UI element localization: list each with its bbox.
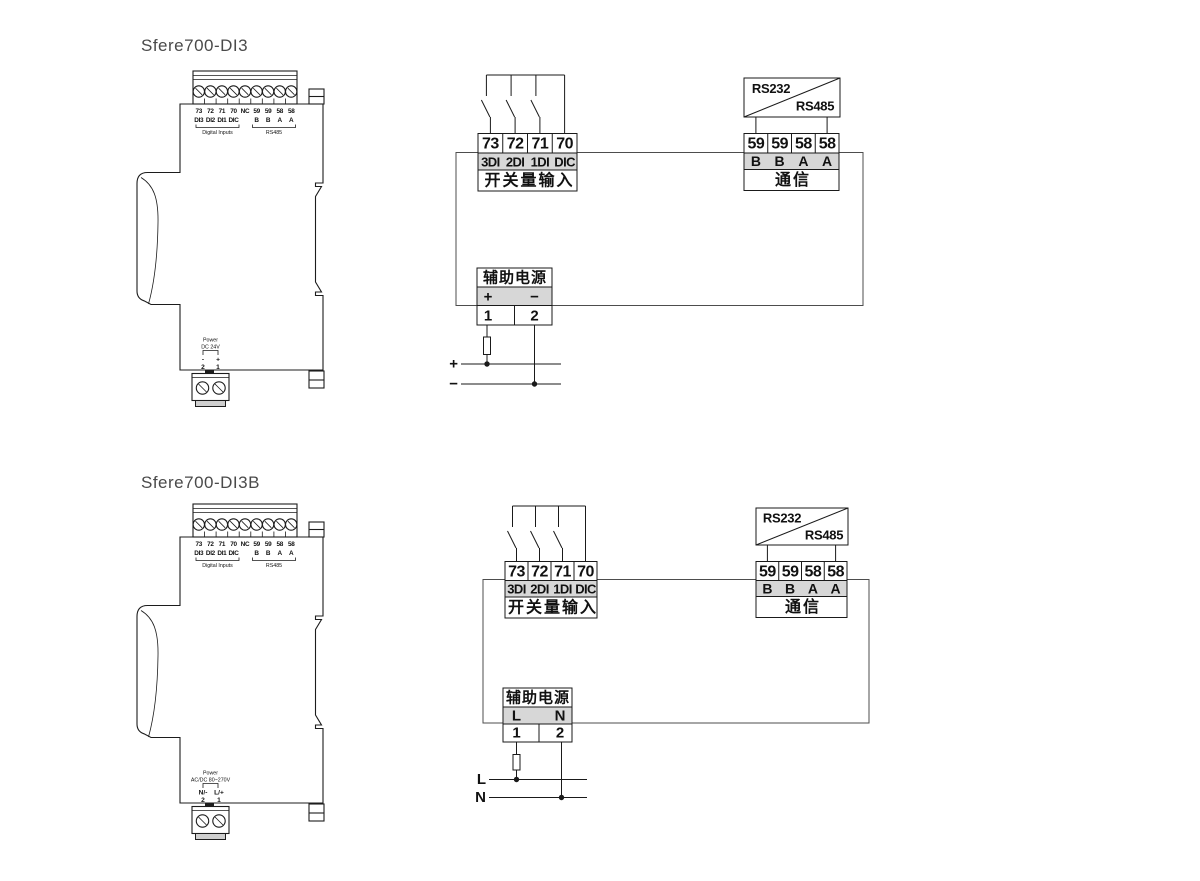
comm-label: A [831,581,841,597]
device-signal-labels: DI3DI2DI1DICBBAA [194,117,294,124]
power-supply-wiring: L N [475,742,587,806]
rs232-label: RS232 [752,81,790,96]
aux-terminal: 2 [556,725,564,742]
rs485-label: RS485 [805,528,843,543]
terminal-number: 59 [265,541,272,548]
terminal-number: 58 [288,108,295,115]
digital-input-block: 73727170 3DI2DI1DIDIC 开关量输入 [505,562,598,619]
comm-terminal: 59 [782,564,799,581]
aux-polarity: L [512,708,521,725]
digital-inputs-group-label: Digital Inputs [202,130,233,136]
comm-label: B [785,581,795,597]
input-label: DIC [554,155,576,170]
power-rating: DC 24V [201,345,220,351]
power-terminal: 2 [201,364,205,371]
aux-terminal: 2 [530,308,538,325]
comm-terminal: 58 [795,136,812,153]
signal-label: A [289,117,294,124]
input-label: 2DI [530,582,548,597]
input-label: 3DI [481,155,499,170]
aux-caption: 辅助电源 [483,269,547,287]
terminal-number: 70 [230,108,237,115]
wiring-diagram-svg: Sfere700-DI3 73727170NC59595858 DI3DI2DI… [0,0,1200,881]
terminal-number: 71 [219,108,226,115]
page-title: Sfere700-DI3B [141,473,260,492]
signal-label: DI3 [194,117,204,124]
page-canvas: Sfere700-DI3 73727170NC59595858 DI3DI2DI… [0,0,1200,881]
rs485-label: RS485 [796,99,834,114]
power-terminal: 1 [217,797,221,804]
power-title: Power [203,771,218,777]
fuse [484,337,491,355]
polarity-label: L/+ [214,790,224,797]
signal-label: B [254,117,259,124]
signal-label: A [278,550,283,557]
rs485-group-label: RS485 [266,563,282,569]
wiring-diagram-di3b: 73727170 3DI2DI1DIDIC 开关量输入 RS232 RS485 … [475,506,869,806]
input-terminal: 72 [507,136,524,153]
comm-label: A [798,153,808,169]
signal-label: DI1 [217,117,227,124]
device-labels-di3: 73727170NC59595858 DI3DI2DI1DICBBAA Digi… [194,108,295,371]
input-terminal: 70 [577,564,594,581]
input-label: 3DI [507,582,525,597]
terminal-number: 70 [230,541,237,548]
device-signal-labels: DI3DI2DI1DICBBAA [194,550,294,557]
signal-label: B [266,550,271,557]
aux-power-block: 辅助电源 +− 12 [477,268,552,325]
terminal-group-brackets [196,125,296,128]
terminal-number: 58 [288,541,295,548]
terminal-number: 72 [207,541,214,548]
signal-label: DIC [228,117,239,124]
comm-terminal: 58 [827,564,844,581]
input-caption: 开关量输入 [484,171,574,190]
comm-caption: 通信 [785,597,821,616]
switch-symbols [508,506,586,562]
supply-label-live: L [477,771,486,788]
section-di3b: Sfere700-DI3B 73727170NC59595858 DI3DI2D… [137,473,869,840]
input-caption: 开关量输入 [508,598,598,617]
input-label: 1DI [531,155,549,170]
digital-input-block: 73727170 3DI2DI1DIDIC 开关量输入 [478,134,577,192]
signal-label: B [266,117,271,124]
comm-label: B [775,153,785,169]
power-terminal: 2 [201,797,205,804]
aux-terminal: 1 [484,308,492,325]
device-terminal-numbers: 73727170NC59595858 [196,108,296,115]
power-rating: AC/DC 80~270V [191,778,231,784]
input-terminal: 73 [508,564,525,581]
input-terminal: 71 [532,136,549,153]
terminal-number: 71 [219,541,226,548]
terminal-number: 58 [276,108,283,115]
comm-label: B [751,153,761,169]
comm-caption: 通信 [775,170,811,189]
polarity-label: - [202,357,204,364]
terminal-number: NC [241,108,250,115]
signal-label: A [289,550,294,557]
terminal-group-brackets [196,558,296,561]
aux-power-block: 辅助电源 LN 12 [503,688,572,742]
power-polarity: -+ [202,357,220,364]
signal-label: DIC [228,550,239,557]
page-title: Sfere700-DI3 [141,36,248,55]
junction-dot [559,795,564,800]
aux-polarity: N [555,708,566,725]
aux-terminal: 1 [512,725,520,742]
input-label: DIC [575,582,597,597]
junction-dot [514,777,519,782]
wiring-diagram-di3: 73727170 3DI2DI1DIDIC 开关量输入 RS232 RS485 … [449,75,863,393]
terminal-number: 59 [253,108,260,115]
rs485-group-label: RS485 [266,130,282,136]
comm-label: A [808,581,818,597]
digital-inputs-group-label: Digital Inputs [202,563,233,569]
polarity-label: N/- [199,790,208,797]
supply-label-positive: + [449,356,458,373]
input-terminal: 73 [482,136,499,153]
signal-label: DI3 [194,550,204,557]
comm-terminal: 58 [819,136,836,153]
supply-label-negative: − [449,376,458,393]
rs232-label: RS232 [763,511,801,526]
polarity-label: + [216,357,220,364]
aux-polarity: + [484,289,493,306]
power-terminal: 1 [216,364,220,371]
input-terminal: 70 [556,136,573,153]
terminal-number: NC [241,541,250,548]
terminal-number: 59 [253,541,260,548]
signal-label: B [254,550,259,557]
terminal-number: 72 [207,108,214,115]
device-labels-di3b: 73727170NC59595858 DI3DI2DI1DICBBAA Digi… [191,541,296,804]
signal-label: A [278,117,283,124]
input-label: 1DI [553,582,571,597]
communication-block: RS232 RS485 59595858 BBAA 通信 [756,508,848,618]
comm-terminal: 58 [805,564,822,581]
power-title: Power [203,338,218,344]
section-di3: Sfere700-DI3 73727170NC59595858 DI3DI2DI… [137,36,863,407]
aux-polarity: − [530,289,539,306]
terminal-number: 58 [276,541,283,548]
device-terminal-numbers: 73727170NC59595858 [196,541,296,548]
communication-block: RS232 RS485 59595858 BBAA 通信 [744,78,840,191]
signal-label: DI2 [206,550,216,557]
power-polarity: N/-L/+ [199,790,224,797]
aux-caption: 辅助电源 [506,689,570,707]
terminal-number: 73 [196,108,203,115]
supply-label-neutral: N [475,789,486,806]
comm-terminal: 59 [748,136,765,153]
comm-terminal: 59 [759,564,776,581]
junction-dot [532,381,537,386]
comm-terminal: 59 [771,136,788,153]
terminal-number: 73 [196,541,203,548]
switch-symbols [481,75,564,134]
input-terminal: 72 [531,564,548,581]
terminal-number: 59 [265,108,272,115]
signal-label: DI2 [206,117,216,124]
signal-label: DI1 [217,550,227,557]
input-label: 2DI [506,155,524,170]
junction-dot [484,361,489,366]
input-terminal: 71 [554,564,571,581]
comm-label: A [822,153,832,169]
power-supply-wiring: + − [449,325,561,393]
comm-label: B [762,581,772,597]
fuse [513,755,520,771]
